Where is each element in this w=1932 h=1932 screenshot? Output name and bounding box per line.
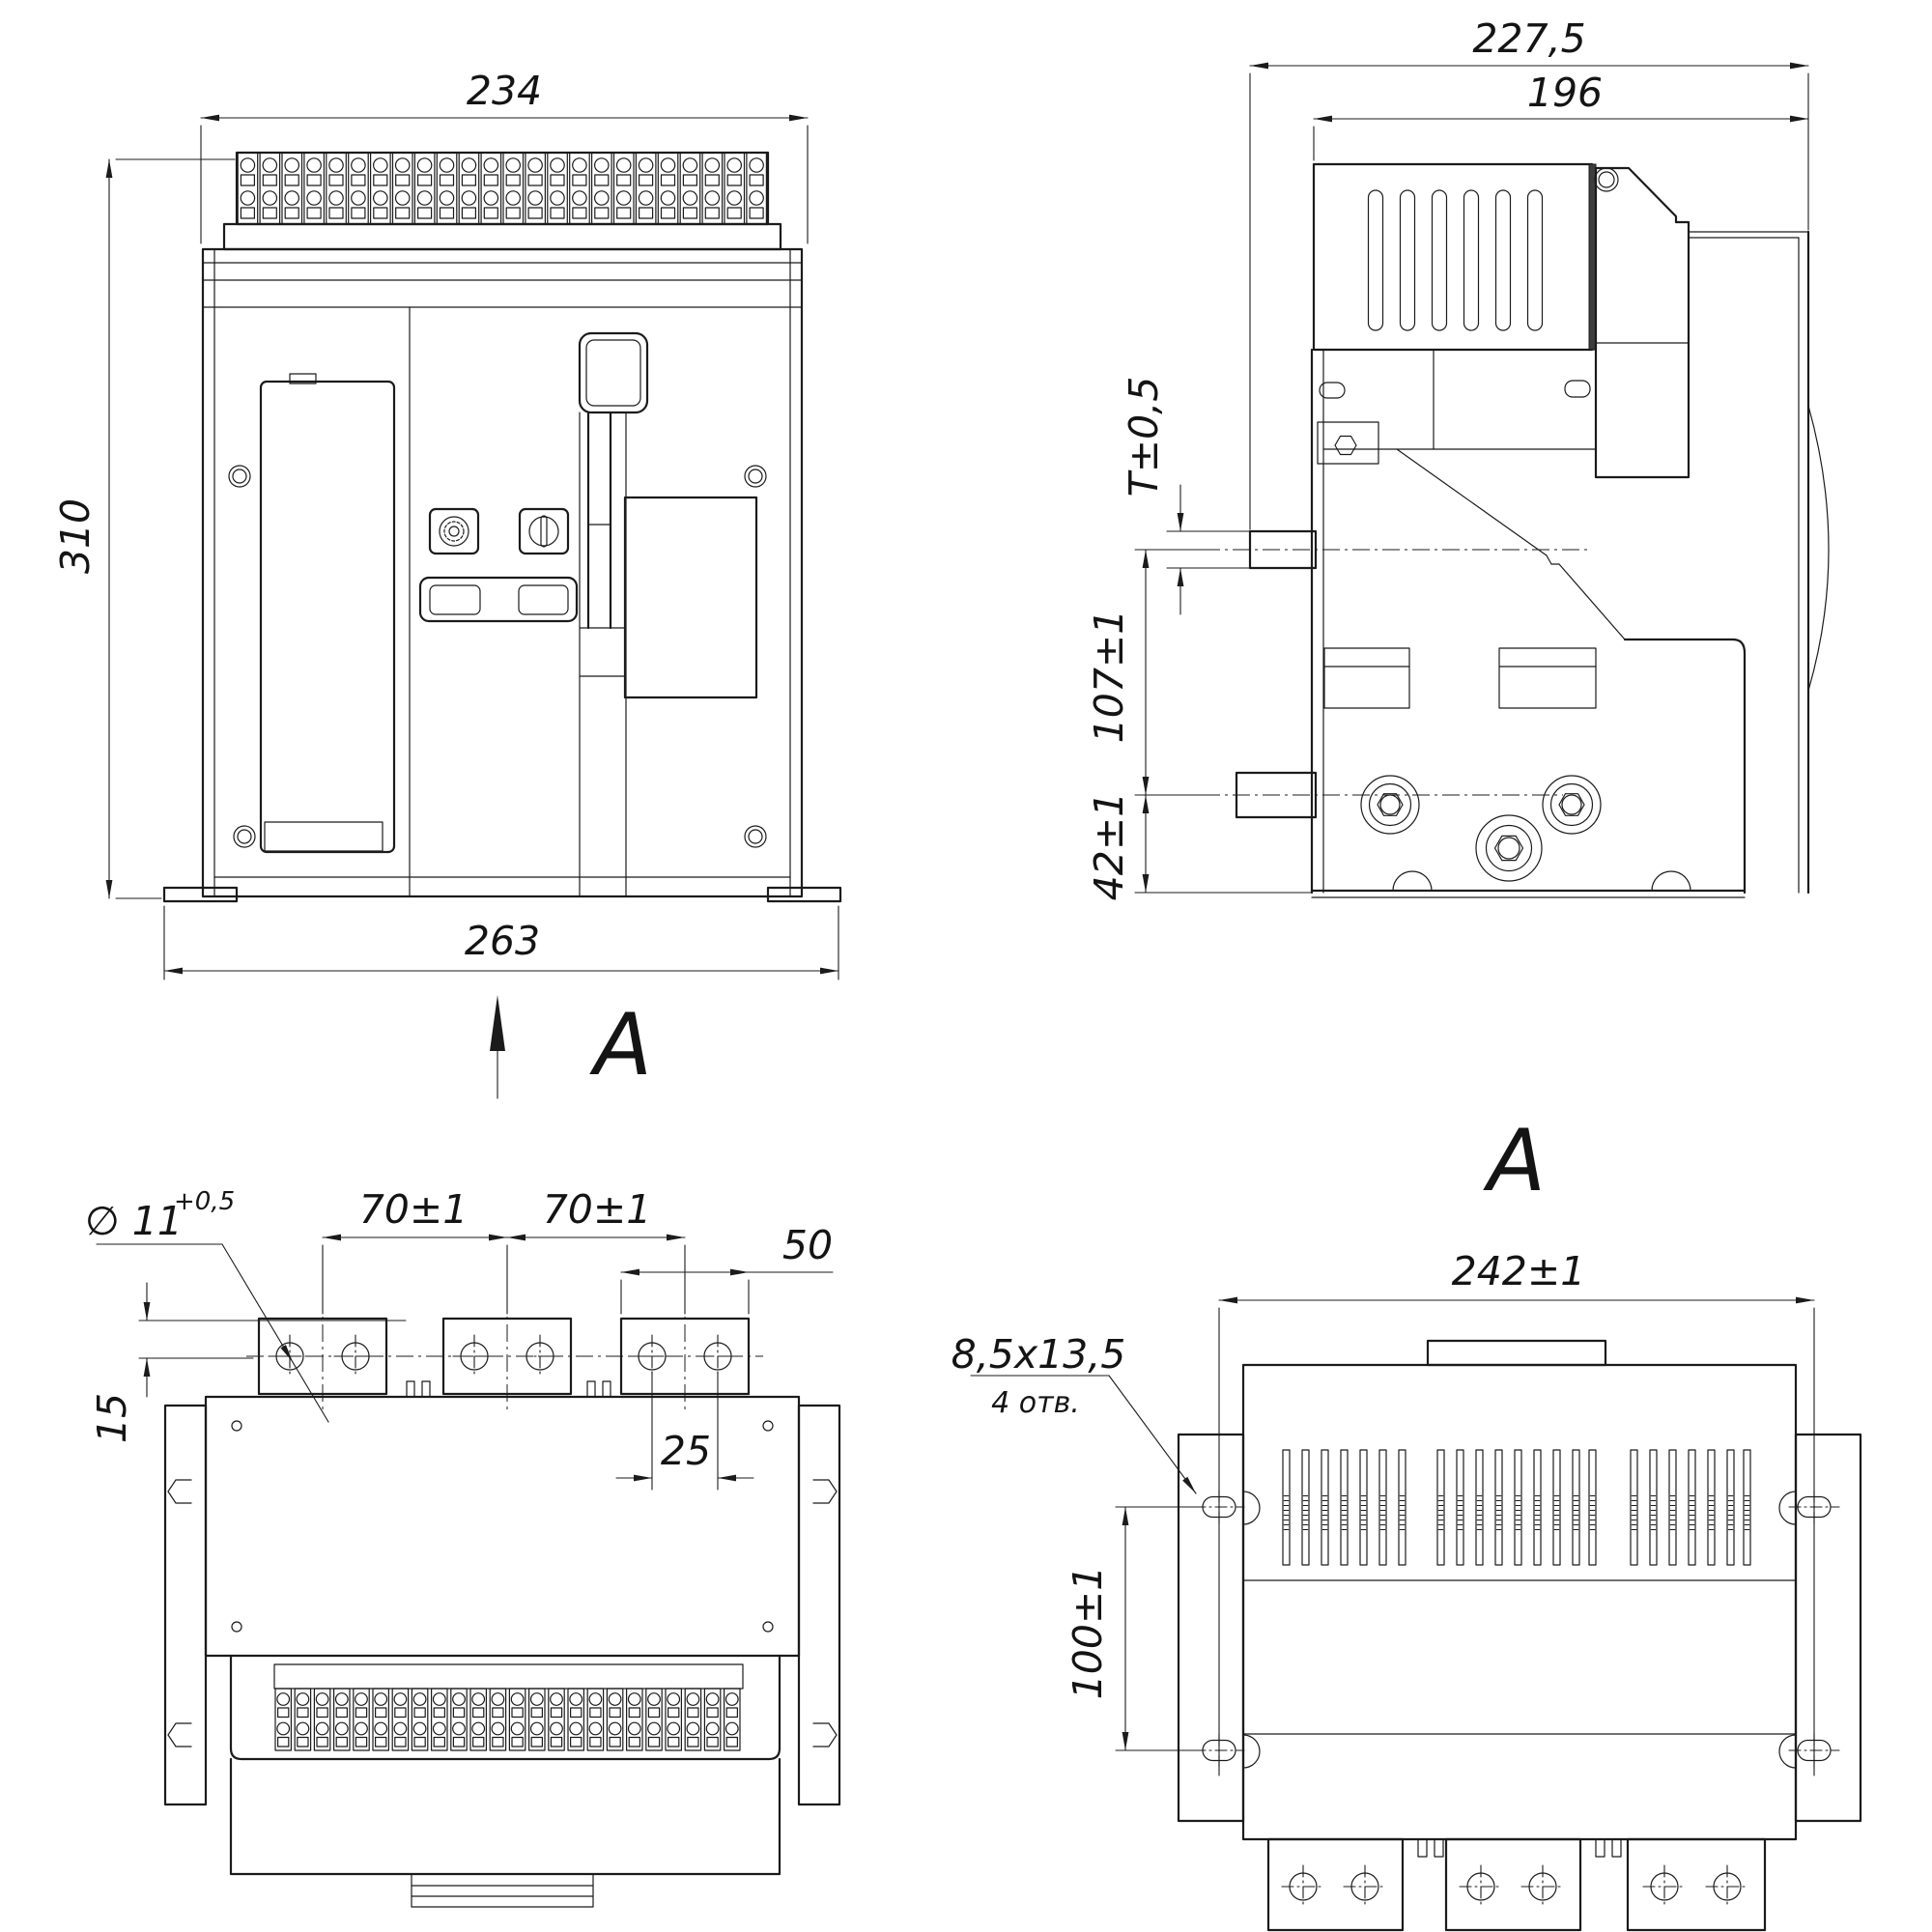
dim-text-242: 242±1	[1452, 1248, 1586, 1294]
dim-text-25: 25	[661, 1428, 711, 1474]
front-knob-charge	[430, 509, 478, 554]
mechanism-diagonal	[1397, 449, 1625, 639]
top-dim-pole-pitch: 70±1 70±1	[323, 1186, 685, 1314]
top-dim-hole-offset: 15	[89, 1283, 406, 1443]
front-handle	[580, 333, 647, 896]
button-on	[430, 585, 480, 614]
rear-brackets	[1179, 1435, 1861, 1821]
button-off	[519, 585, 568, 614]
top-dim-pad-width: 50	[621, 1222, 833, 1314]
top-terminal-pads	[246, 1294, 763, 1412]
dim-text-T: T±0,5	[1121, 377, 1167, 497]
base-arch-left	[1393, 871, 1432, 891]
dim-text-4otv: 4 отв.	[991, 1386, 1080, 1420]
side-body	[1312, 350, 1745, 897]
terminal-base-plate	[224, 224, 781, 249]
front-screws	[229, 466, 766, 847]
side-vent-cover	[1314, 164, 1596, 350]
dim-text-50: 50	[782, 1222, 833, 1268]
front-label-panel	[261, 374, 394, 852]
view-direction-arrow: A	[490, 995, 652, 1098]
front-dim-height: 310	[52, 159, 235, 898]
front-dim-width-top: 234	[201, 68, 808, 243]
dim-text-70-left: 70±1	[359, 1186, 469, 1233]
dim-text-15: 15	[89, 1393, 135, 1443]
base-arch-right	[1652, 871, 1690, 891]
top-secondary-terminals	[231, 1656, 780, 1759]
dim-text-85x135: 8,5x13,5	[952, 1331, 1126, 1378]
front-view: 234 310	[52, 68, 840, 1098]
side-dim-terminal-pitch: 107±1	[1086, 550, 1207, 795]
side-dim-terminal-thickness: T±0,5	[1121, 377, 1256, 614]
top-callout-diameter: ∅ 11 +0,5	[85, 1187, 328, 1422]
side-dim-depth-body: 196	[1314, 70, 1808, 160]
side-terminals	[1203, 531, 1589, 817]
drawing-sheet: 234 310	[0, 0, 1932, 1932]
drawing-svg: 234 310	[0, 0, 1932, 1932]
dim-text-42: 42±1	[1086, 792, 1132, 901]
front-nameplate	[625, 497, 756, 697]
front-feet	[164, 888, 840, 901]
top-side-brackets	[165, 1406, 839, 1804]
dim-text-196: 196	[1527, 70, 1603, 116]
dim-text-d11: ∅ 11	[85, 1198, 183, 1244]
dim-text-310: 310	[52, 498, 99, 574]
dim-text-234: 234	[467, 68, 542, 114]
pole-shaft-arc	[1808, 406, 1829, 691]
dim-text-107: 107±1	[1086, 610, 1132, 744]
dim-text-263: 263	[465, 918, 540, 964]
rear-view-title: A	[1483, 1111, 1546, 1210]
rear-vent-slats	[1283, 1450, 1750, 1565]
front-terminal-strip	[224, 153, 781, 249]
rear-callout-mounting-holes: 8,5x13,5 4 отв.	[952, 1331, 1199, 1495]
top-body	[165, 1381, 839, 1907]
top-lower-housing	[231, 1759, 780, 1907]
rear-body	[1243, 1341, 1796, 1839]
top-view: ∅ 11 +0,5 70±1 70±1 50 15	[85, 1186, 839, 1907]
front-dim-width-bottom: 263	[164, 906, 838, 980]
view-arrow-letter: A	[589, 995, 652, 1094]
side-rear-plane	[1799, 232, 1829, 893]
front-knob-selector	[520, 509, 568, 554]
dim-text-100: 100±1	[1065, 1566, 1111, 1700]
side-view: 227,5 196	[1086, 15, 1829, 1210]
dim-text-70-right: 70±1	[543, 1186, 652, 1233]
dim-text-227-5: 227,5	[1472, 15, 1585, 62]
front-body	[164, 249, 840, 901]
side-dim-lower-terminal: 42±1	[1086, 792, 1312, 901]
rear-terminal-pads	[1268, 1839, 1765, 1930]
front-buttons	[420, 578, 577, 621]
casing-outline	[1625, 639, 1745, 893]
dim-text-d11-tol: +0,5	[174, 1187, 235, 1216]
side-rear-cover	[1595, 168, 1808, 477]
rear-view: 242±1 8,5x13,5 4 отв. 100±1	[952, 1248, 1861, 1930]
